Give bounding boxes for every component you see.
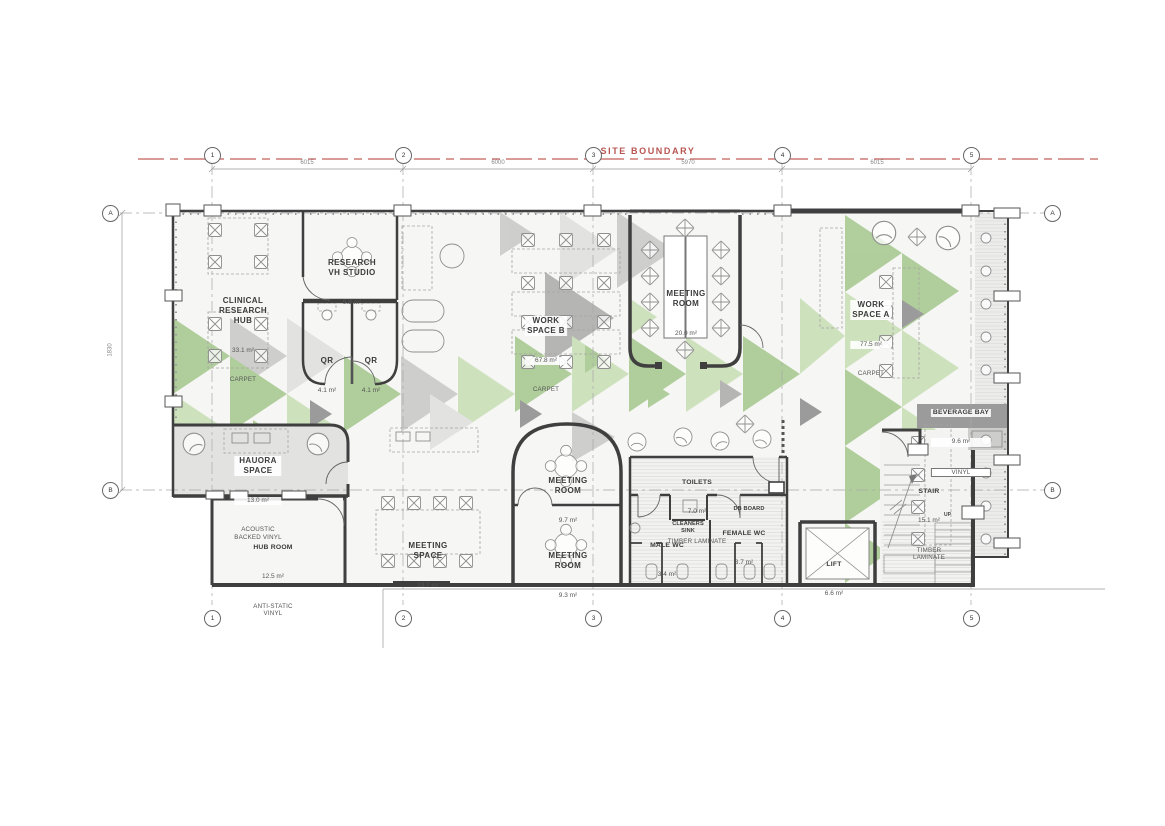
grid-bubble-col-2-bottom: 2 — [395, 610, 412, 627]
grid-bubble-row-a-right: A — [1044, 205, 1061, 222]
grid-bubble-col-4-bottom: 4 — [774, 610, 791, 627]
stair-up-label: UP — [944, 512, 951, 518]
room-label-female-wc: FEMALE WC 3.7 m² — [723, 510, 766, 588]
room-label-research-vh-studio: RESEARCH VH STUDIO 9.8 m² — [328, 238, 376, 327]
room-label-male-wc: MALE WC 3.4 m² — [650, 522, 684, 600]
grid-bubble-col-5-bottom: 5 — [963, 610, 980, 627]
room-label-clinical-research-hub: CLINICAL RESEARCH HUB 33.1 m² CARPET — [219, 276, 267, 404]
floor-plan-page: SITE BOUNDARY 1 2 3 4 5 1 2 3 4 5 A B A … — [0, 0, 1165, 826]
dim-grid-2-3: 6000 — [491, 160, 504, 166]
grid-bubble-row-a-left: A — [102, 205, 119, 222]
grid-bubble-col-3-top: 3 — [585, 147, 602, 164]
grid-bubble-row-b-right: B — [1044, 482, 1061, 499]
db-board-unit — [769, 482, 784, 493]
dim-grid-4-5: 6015 — [870, 160, 883, 166]
grid-bubble-col-5-top: 5 — [963, 147, 980, 164]
grid-bubble-row-b-left: B — [102, 482, 119, 499]
room-label-qr-1: QR 4.1 m² — [318, 336, 336, 415]
grid-bubble-col-2-top: 2 — [395, 147, 412, 164]
room-label-lift: LIFT 6.6 m² — [825, 541, 843, 619]
room-label-beverage-bay: BEVERAGE BAY 9.6 m² VINYL — [931, 389, 991, 497]
room-label-qr-2: QR 4.1 m² — [362, 336, 380, 415]
dim-grid-1-2: 6015 — [300, 160, 313, 166]
room-label-meeting-room-93: MEETING ROOM 9.3 m² — [548, 531, 587, 620]
room-label-hub-room: HUB ROOM 12.5 m² ANTI-STATIC VINYL — [253, 524, 292, 638]
grid-bubble-col-1-bottom: 1 — [204, 610, 221, 627]
grid-bubble-col-4-top: 4 — [774, 147, 791, 164]
dim-grid-a-b: 1830 — [108, 343, 114, 356]
grid-bubble-col-1-top: 1 — [204, 147, 221, 164]
site-boundary-label: SITE BOUNDARY — [601, 146, 696, 156]
room-label-work-space-a: WORK SPACE A 77.5 m² CARPET — [850, 280, 891, 398]
room-label-work-space-b: WORK SPACE B 67.8 m² CARPET — [525, 296, 567, 414]
room-label-meeting-space: MEETING SPACE 33.7 m² — [408, 521, 447, 610]
dim-grid-3-4: 5970 — [681, 160, 694, 166]
room-label-meeting-room-20: MEETING ROOM 20.0 m² — [666, 269, 705, 358]
